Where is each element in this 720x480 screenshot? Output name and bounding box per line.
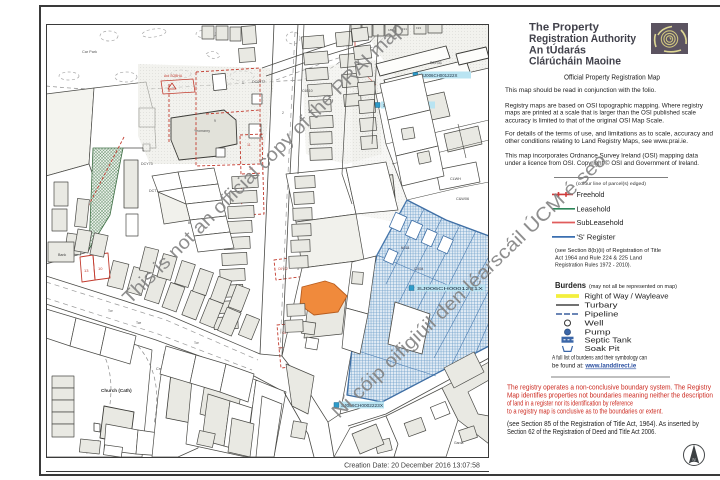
svg-text:193: 193 bbox=[416, 26, 421, 30]
svg-text:This map should be read in con: This map should be read in conjunction w… bbox=[505, 87, 656, 94]
svg-text:Burdens: Burdens bbox=[555, 280, 586, 290]
svg-text:C2004: C2004 bbox=[414, 267, 424, 271]
svg-text:accuracy is limited to that of: accuracy is limited to that of the origi… bbox=[505, 117, 664, 124]
svg-text:1: 1 bbox=[242, 81, 244, 85]
svg-text:C&W06: C&W06 bbox=[456, 197, 469, 201]
svg-text:10: 10 bbox=[98, 266, 103, 271]
svg-text:Clárúcháin Maoine: Clárúcháin Maoine bbox=[529, 56, 621, 68]
svg-text:13: 13 bbox=[84, 268, 89, 273]
svg-text:BER31: BER31 bbox=[430, 61, 442, 65]
svg-text:Freehold: Freehold bbox=[577, 190, 605, 199]
svg-text:Tce: Tce bbox=[194, 341, 199, 345]
svg-text:The registry operates a non-co: The registry operates a non-conclusive b… bbox=[507, 385, 711, 392]
svg-text:Right of Way / Wayleave: Right of Way / Wayleave bbox=[585, 292, 669, 301]
svg-text:9: 9 bbox=[214, 119, 216, 123]
svg-text:2: 2 bbox=[282, 111, 284, 115]
svg-text:Tce: Tce bbox=[108, 309, 113, 313]
svg-text:(may not all be represented on: (may not all be represented on map) bbox=[589, 284, 677, 290]
svg-text:Leasehold: Leasehold bbox=[577, 204, 611, 213]
svg-text:Registry maps are based on OSI: Registry maps are based on OSI topograph… bbox=[505, 102, 704, 109]
svg-text:Section 62 of the Registration: Section 62 of the Registration of Deed a… bbox=[507, 429, 656, 436]
svg-text:Registration Authority: Registration Authority bbox=[529, 33, 637, 45]
svg-text:11: 11 bbox=[247, 143, 251, 147]
svg-text:under a licence from OSI. Copy: under a licence from OSI. Copyright © OS… bbox=[505, 159, 699, 167]
svg-text:SJ006CH0002223X: SJ006CH0002223X bbox=[341, 403, 383, 408]
svg-text:A full list of burdens and the: A full list of burdens and their symbolo… bbox=[552, 356, 647, 362]
svg-text:Tce: Tce bbox=[136, 321, 141, 325]
svg-text:maps are printed at a scale th: maps are printed at a scale that is larg… bbox=[505, 110, 696, 117]
svg-text:Official Property Registration: Official Property Registration Map bbox=[564, 75, 660, 82]
svg-text:Map identifies properties not: Map identifies properties not boundaries… bbox=[507, 393, 713, 400]
svg-text:(see Section 8(b)(ii) of Regis: (see Section 8(b)(ii) of Registration of… bbox=[555, 248, 661, 254]
svg-text:(see Section 85 of the Registr: (see Section 85 of the Registration of T… bbox=[507, 421, 699, 428]
svg-text:Car Park: Car Park bbox=[82, 50, 97, 54]
svg-text:Registration Rules 1972 - 2010: Registration Rules 1972 - 2010). bbox=[555, 263, 631, 269]
svg-text:This map incorporates Ordnance: This map incorporates Ordnance Survey Ir… bbox=[505, 153, 698, 160]
svg-text:other conditions relating to L: other conditions relating to Land Regist… bbox=[505, 138, 688, 145]
svg-text:Creation Date: 20 December 201: Creation Date: 20 December 2016 13:07:58 bbox=[344, 463, 480, 470]
svg-text:Church (Cath): Church (Cath) bbox=[101, 388, 132, 393]
svg-text:DCY73: DCY73 bbox=[141, 162, 153, 166]
svg-text:CLWH: CLWH bbox=[450, 177, 461, 181]
svg-text:For details of the terms of us: For details of the terms of use, and lim… bbox=[505, 131, 713, 138]
svg-text:NO18: NO18 bbox=[401, 246, 410, 250]
svg-text:C6510: C6510 bbox=[302, 89, 313, 93]
svg-text:Act 1964 and Rule 224 & 225 La: Act 1964 and Rule 224 & 225 Land bbox=[555, 255, 642, 261]
svg-text:SubLeasehold: SubLeasehold bbox=[577, 218, 624, 227]
svg-text:Well: Well bbox=[585, 319, 605, 328]
svg-text:SJ006CH0001221X: SJ006CH0001221X bbox=[417, 286, 483, 291]
svg-text:191: 191 bbox=[402, 27, 407, 31]
svg-text:Ard SOBHA: Ard SOBHA bbox=[164, 74, 183, 78]
svg-text:(colour line of parcel(s) edge: (colour line of parcel(s) edged) bbox=[576, 181, 646, 187]
svg-text:of land in a register nor its: of land in a register nor its identifica… bbox=[507, 400, 633, 407]
svg-text:be found at: www.landdirect.ie: be found at: www.landdirect.ie bbox=[552, 364, 637, 370]
svg-text:Soak Pit: Soak Pit bbox=[585, 344, 620, 353]
svg-text:C6Y02: C6Y02 bbox=[278, 267, 288, 271]
svg-text:Pipeline: Pipeline bbox=[585, 310, 619, 319]
svg-text:Garda: Garda bbox=[454, 441, 464, 445]
svg-text:The Property: The Property bbox=[529, 22, 600, 34]
svg-text:Bank: Bank bbox=[58, 253, 66, 257]
svg-text:SJ006CH001222X: SJ006CH001222X bbox=[421, 73, 457, 78]
svg-text:'S' Register: 'S' Register bbox=[577, 233, 616, 242]
svg-text:14: 14 bbox=[249, 167, 253, 171]
svg-text:to a registry map is conclusiv: to a registry map is conclusive as to th… bbox=[507, 408, 663, 415]
svg-text:189: 189 bbox=[388, 28, 393, 32]
svg-text:An tÚdarás: An tÚdarás bbox=[529, 43, 586, 56]
svg-text:DC0977: DC0977 bbox=[252, 80, 265, 84]
svg-text:Turbary: Turbary bbox=[585, 301, 619, 310]
svg-text:N: N bbox=[692, 457, 695, 462]
